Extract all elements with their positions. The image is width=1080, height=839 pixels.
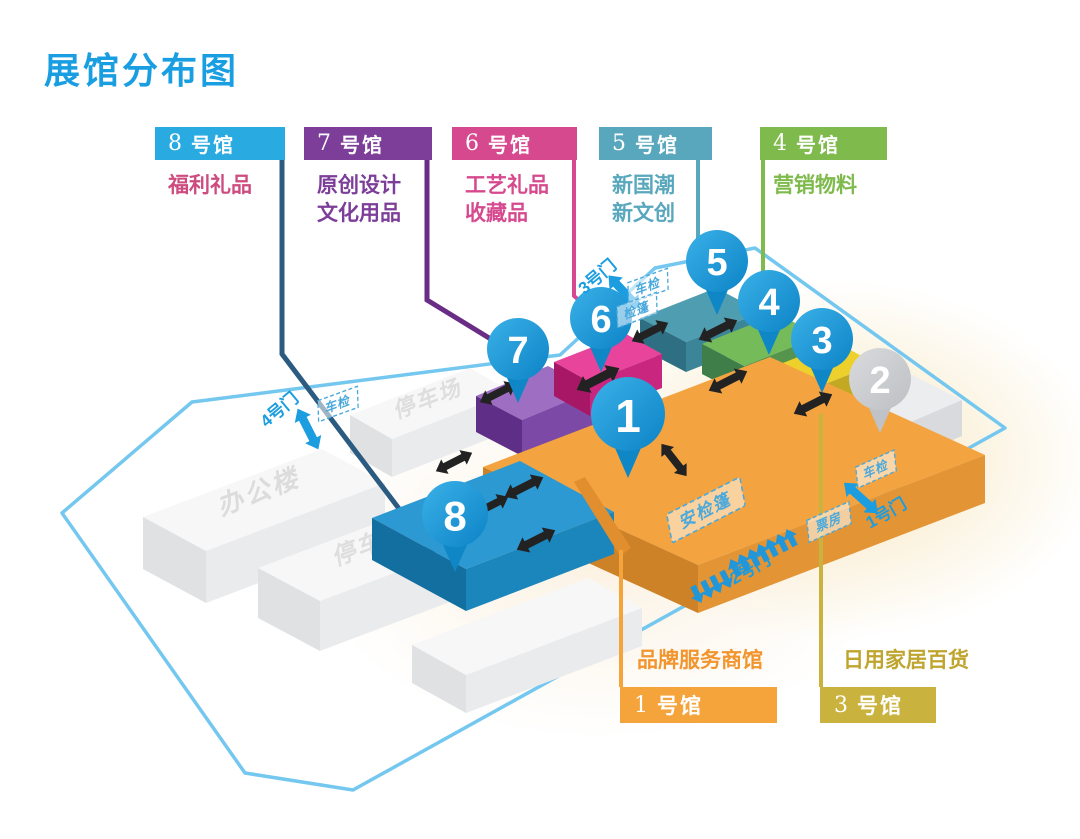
hall-label-8: 8 号馆 福利礼品 xyxy=(155,127,285,200)
hall-6-number: 6 xyxy=(465,131,481,156)
pin-number: 6 xyxy=(590,299,611,341)
hall-label-5: 5 号馆 新国潮 新文创 xyxy=(599,127,712,228)
hall-1-suffix: 号馆 xyxy=(657,690,703,720)
hall-5-suffix: 号馆 xyxy=(635,129,679,158)
page-title: 展馆分布图 xyxy=(44,42,239,94)
hall-8-suffix: 号馆 xyxy=(191,129,235,158)
hall-8-header: 8 号馆 xyxy=(155,127,285,160)
hall-label-7: 7 号馆 原创设计 文化用品 xyxy=(304,127,432,228)
hall-1-header: 1 号馆 xyxy=(620,687,777,723)
hall-8-category: 福利礼品 xyxy=(155,172,285,200)
pin-number: 4 xyxy=(758,282,779,324)
pin-number: 3 xyxy=(811,320,832,362)
pin-number: 5 xyxy=(706,242,727,284)
hall-6-category: 工艺礼品 收藏品 xyxy=(452,172,577,228)
exhibition-map-page: 停车场 办公楼 停车场 xyxy=(0,0,1080,839)
hall-4-number: 4 xyxy=(773,131,789,156)
hall-label-4: 4 号馆 营销物料 xyxy=(760,127,887,200)
hall-4-suffix: 号馆 xyxy=(796,129,840,158)
hall-1-category: 品牌服务商馆 xyxy=(637,644,763,674)
hall-6-suffix: 号馆 xyxy=(488,129,532,158)
hall-5-number: 5 xyxy=(612,131,628,156)
hall-7-category: 原创设计 文化用品 xyxy=(304,172,432,228)
hall-7-number: 7 xyxy=(317,131,333,156)
hall-6-header: 6 号馆 xyxy=(452,127,577,160)
hall-4-header: 4 号馆 xyxy=(760,127,887,160)
hall-label-6: 6 号馆 工艺礼品 收藏品 xyxy=(452,127,577,228)
hall-5-category: 新国潮 新文创 xyxy=(599,172,712,228)
pin-number: 1 xyxy=(615,390,641,442)
hall-3-header: 3 号馆 xyxy=(820,687,936,723)
hall-5-header: 5 号馆 xyxy=(599,127,712,160)
hall-4-category: 营销物料 xyxy=(760,172,887,200)
hall-8-number: 8 xyxy=(168,131,184,156)
hall-3-number: 3 xyxy=(834,693,850,718)
pin-number: 8 xyxy=(443,493,466,540)
hall-3-suffix: 号馆 xyxy=(857,690,903,720)
pin-number: 2 xyxy=(869,360,890,402)
hall-3-category: 日用家居百货 xyxy=(843,644,969,674)
pin-number: 7 xyxy=(507,330,528,372)
hall-7-header: 7 号馆 xyxy=(304,127,432,160)
hall-1-number: 1 xyxy=(634,693,650,718)
hall-7-suffix: 号馆 xyxy=(340,129,384,158)
